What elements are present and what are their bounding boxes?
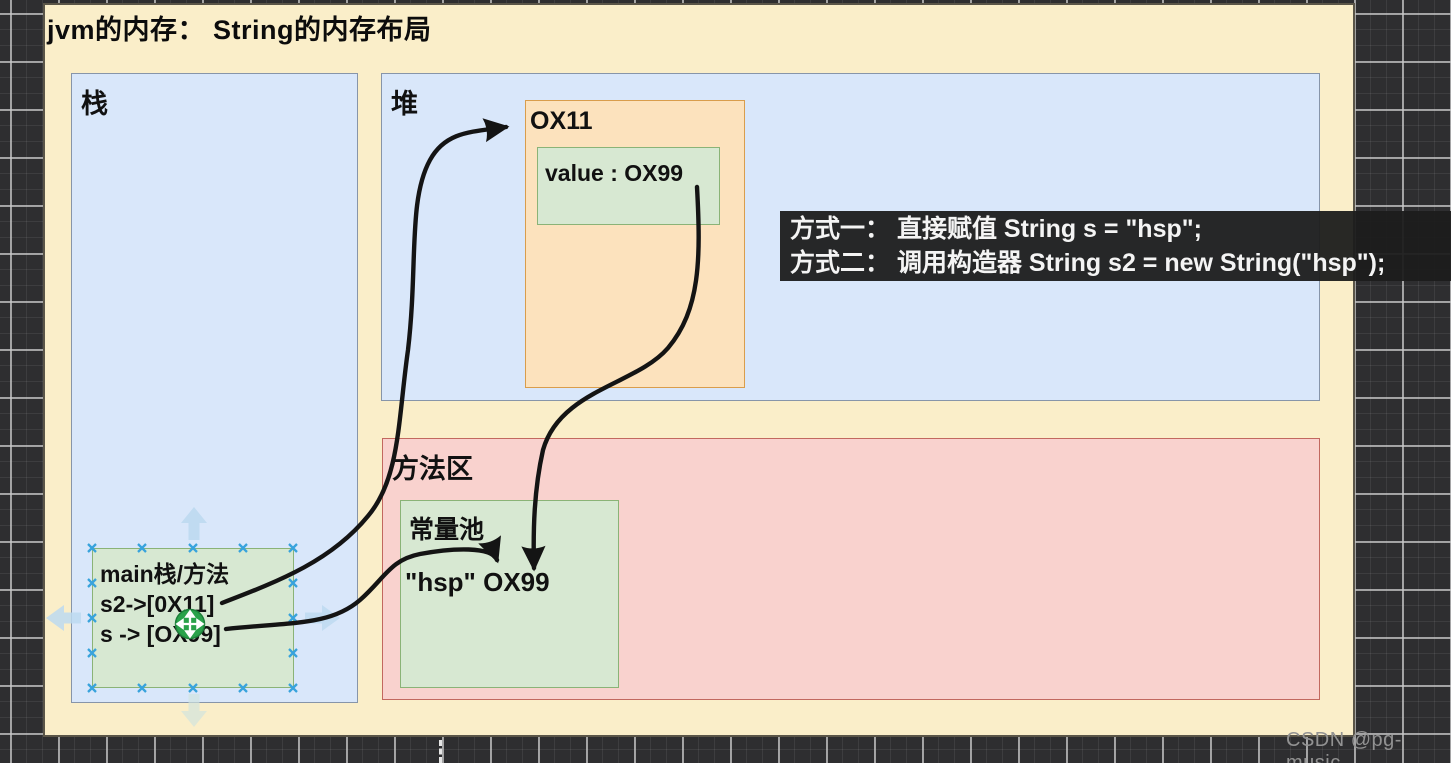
annotation-line-2: 方式二： 调用构造器 String s2 = new String("hsp")… [790,246,1451,280]
code-annotation-box[interactable]: 方式一： 直接赋值 String s = "hsp"; 方式二： 调用构造器 S… [780,211,1451,281]
constant-pool-box[interactable]: 常量池 "hsp" OX99 [400,500,619,688]
constant-pool-label: 常量池 [401,501,484,546]
stack-frame-title: main栈/方法 [100,559,293,589]
heap-object-value: value : OX99 [538,148,683,187]
stack-region-label: 栈 [72,74,108,121]
constant-pool-entry: "hsp" OX99 [405,567,550,598]
canvas-guide-dash [439,740,442,763]
drawing-canvas[interactable]: jvm的内存： String的内存布局 栈 堆 OX11 value : OX9… [0,0,1451,763]
method-area-label: 方法区 [383,439,473,486]
heap-object-box[interactable]: OX11 [525,100,745,388]
stack-frame-s-ref: s -> [OX99] [100,619,293,649]
annotation-line-1: 方式一： 直接赋值 String s = "hsp"; [790,212,1451,246]
stack-frame-s2-ref: s2->[0X11] [100,589,293,619]
heap-region-label: 堆 [382,74,418,121]
page-title: jvm的内存： String的内存布局 [47,8,432,47]
stack-frame-box[interactable]: main栈/方法 s2->[0X11] s -> [OX99] [92,548,294,688]
watermark: CSDN @pg-music [1286,729,1451,763]
heap-object-value-box[interactable]: value : OX99 [537,147,720,225]
heap-object-address: OX11 [526,101,593,136]
